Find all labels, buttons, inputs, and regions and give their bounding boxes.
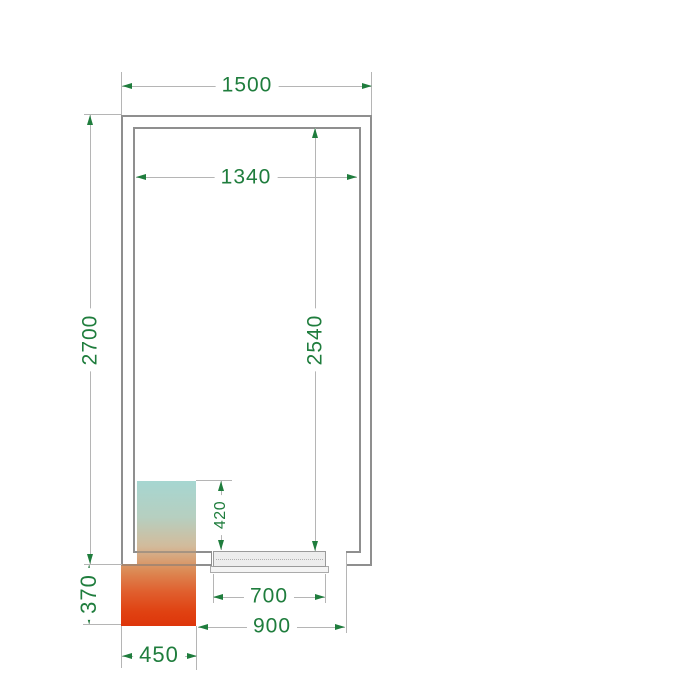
ext-line [121, 72, 122, 115]
door-jamb-left [211, 551, 212, 566]
dim-arrow-up-icon [312, 128, 318, 138]
dim-arrow-right-icon [362, 83, 372, 89]
dim-label-door-opening: 700 [244, 584, 294, 607]
dim-label-overall-width: 1500 [216, 73, 279, 96]
dim-label-inner-depth: 2540 [303, 309, 326, 372]
wall-line-through-unit-inner [137, 551, 196, 553]
dim-label-unit-recess: 420 [212, 495, 230, 535]
ext-line [121, 626, 122, 668]
dim-arrow-left-icon [122, 83, 132, 89]
dim-arrow-right-icon [187, 653, 197, 659]
ext-line [371, 72, 372, 115]
dim-arrow-left-icon [198, 624, 208, 630]
dim-label-inner-width: 1340 [215, 165, 278, 188]
dim-arrow-right-icon [347, 174, 357, 180]
ext-line [346, 553, 347, 633]
dim-arrow-left-icon [136, 174, 146, 180]
dim-label-unit-width: 450 [133, 643, 185, 667]
dim-label-overall-depth: 2700 [78, 309, 101, 372]
door-frame-threshold [210, 566, 329, 573]
ext-line [196, 626, 197, 670]
dim-arrow-left-icon [213, 594, 223, 600]
dim-label-door-overall: 900 [247, 614, 297, 637]
dim-arrow-up-icon [218, 481, 224, 491]
dim-arrow-right-icon [335, 624, 345, 630]
door-leaf-center-line [216, 559, 323, 560]
dim-label-unit-protrusion: 370 [77, 568, 101, 620]
dim-arrow-right-icon [315, 594, 325, 600]
dim-arrow-down-icon [312, 541, 318, 551]
ext-line [196, 480, 232, 481]
wall-line-through-unit-outer [121, 564, 196, 566]
dim-arrow-down-icon [87, 554, 93, 564]
door-leaf [213, 551, 326, 567]
ext-line [325, 574, 326, 603]
cold-room-plan-drawing: 1500 1340 2700 2540 420 370 700 900 450 [0, 0, 700, 700]
dim-arrow-left-icon [122, 653, 132, 659]
ext-line [83, 624, 121, 625]
dim-arrow-up-icon [87, 115, 93, 125]
dim-arrow-down-icon [218, 540, 224, 550]
